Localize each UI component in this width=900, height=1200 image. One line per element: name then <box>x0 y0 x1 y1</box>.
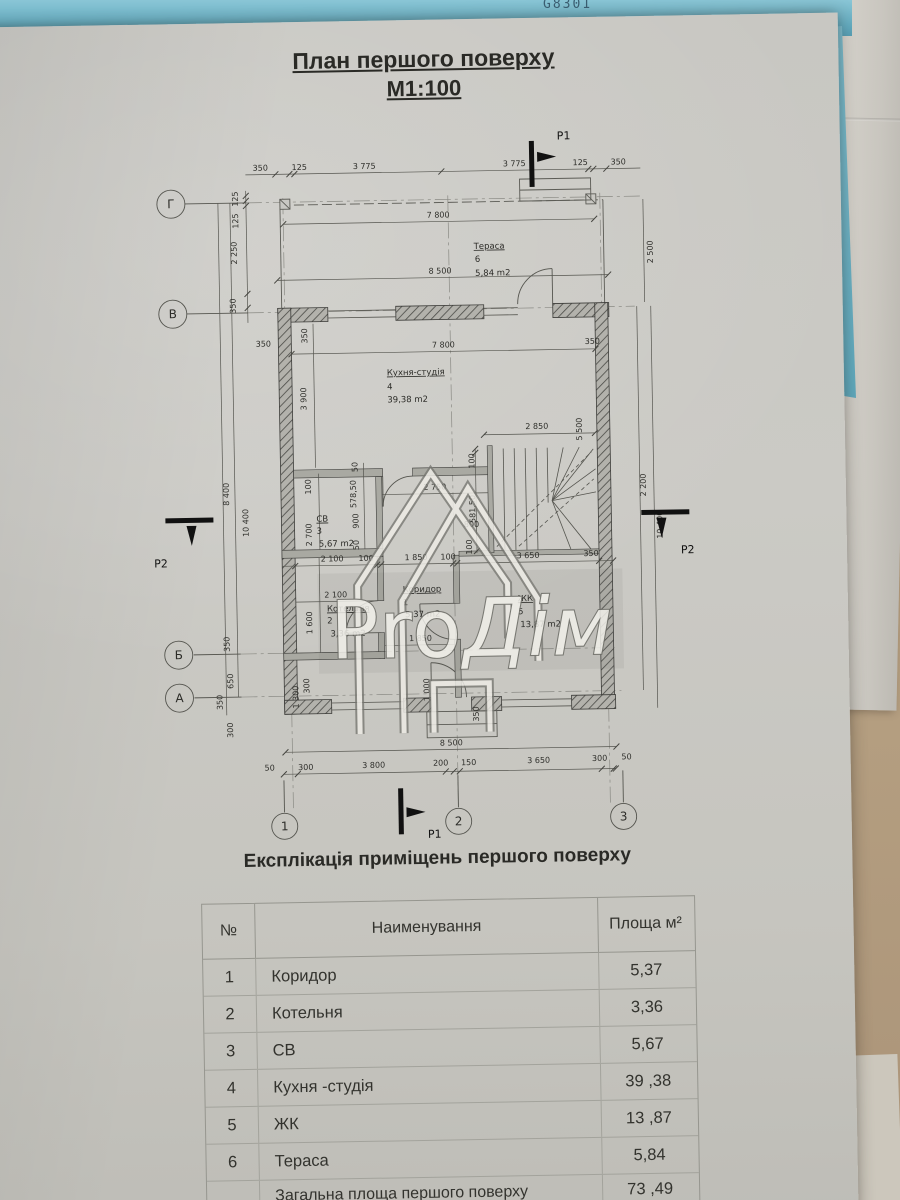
row-name: Тераса <box>258 1138 603 1180</box>
row-area: 13 ,87 <box>602 1099 697 1137</box>
dim-label: 8 500 <box>429 266 452 275</box>
dim-label: 350 <box>256 339 271 348</box>
row-number: 6 <box>206 1144 259 1181</box>
dim-label: 8 400 <box>222 483 231 506</box>
dim-label: 100 <box>467 453 476 468</box>
room-number: 3 <box>317 527 323 537</box>
paper-crease <box>839 117 900 121</box>
explication-table: № Наименування Площа м² 1Коридор5,372Кот… <box>201 895 700 1200</box>
title-text: План першого поверху <box>223 42 623 76</box>
dim-label: 350 <box>222 637 231 652</box>
room-area: 5,84 m2 <box>475 268 510 279</box>
total-number <box>207 1181 260 1200</box>
room-number: 6 <box>475 255 481 265</box>
dim-label: 10 400 <box>241 509 250 537</box>
dim-label: 125 <box>292 163 307 172</box>
axis-letter: А <box>175 691 184 705</box>
dim-label: 2 700 <box>304 523 313 546</box>
dim-label: 350 <box>229 298 238 313</box>
photo-background: G8301 План першого поверху М1:100 <box>0 0 900 1200</box>
axis-grid-lines <box>233 192 654 813</box>
dim-label: 100 <box>304 479 313 494</box>
room-number: 4 <box>387 382 393 392</box>
dim-label: 350 <box>610 157 625 166</box>
dim-label: 2 500 <box>646 240 655 263</box>
dim-label: 50 <box>350 462 359 472</box>
staircase <box>495 447 597 551</box>
row-area: 3,36 <box>600 988 695 1026</box>
dim-label: 300 <box>592 754 607 763</box>
dim-label: 2 200 <box>639 473 648 496</box>
plan-document: План першого поверху М1:100 <box>0 13 859 1200</box>
dim-label: 3 775 <box>353 162 376 171</box>
dim-label: 350 <box>472 706 481 721</box>
room-area: 39,38 m2 <box>387 395 428 406</box>
row-number: 1 <box>203 959 256 996</box>
dim-label: 125 <box>572 158 587 167</box>
dim-label: 100 <box>440 552 455 561</box>
dim-label: 350 <box>300 328 309 343</box>
floor-plan-drawing: 350 125 3 775 3 775 125 350 7 800 8 500 … <box>131 113 714 863</box>
row-number: 3 <box>204 1033 257 1070</box>
section-label: P2 <box>154 557 168 570</box>
dim-label: 200 <box>433 758 448 767</box>
axis-letter: Б <box>175 648 183 662</box>
row-number: 4 <box>205 1070 258 1107</box>
row-name: Кухня -студія <box>257 1064 602 1106</box>
total-area: 73 ,49 <box>603 1173 698 1200</box>
axis-number: 3 <box>620 809 628 823</box>
watermark-text: ProДім <box>330 580 616 678</box>
row-name: Коридор <box>255 953 600 995</box>
section-label: P2 <box>681 543 695 556</box>
dim-label: 300 <box>226 723 235 738</box>
room-name: Тераса <box>473 241 505 252</box>
table-header-row: № Наименування Площа м² <box>202 896 695 960</box>
row-area: 39 ,38 <box>601 1062 696 1100</box>
dim-label: 350 <box>253 164 268 173</box>
page-title: План першого поверху М1:100 <box>223 42 624 105</box>
row-name: Котельня <box>256 990 601 1032</box>
row-name: СВ <box>256 1027 601 1069</box>
dim-label: 8 500 <box>440 738 463 747</box>
row-area: 5,37 <box>599 951 694 989</box>
dim-label: 1 300 <box>291 686 300 709</box>
dim-label: 900 <box>351 513 360 528</box>
row-area: 5,84 <box>602 1136 697 1174</box>
axis-letter: В <box>169 307 177 321</box>
axis-markers <box>157 182 637 841</box>
axis-number: 2 <box>455 814 463 828</box>
dim-label: 5 500 <box>575 418 584 441</box>
axis-letters: Г В Б А 1 2 3 <box>167 189 628 835</box>
dim-label: 3 650 <box>527 756 550 765</box>
dim-label: 50 <box>621 752 631 761</box>
section-label: P1 <box>557 129 571 142</box>
row-number: 2 <box>204 996 257 1033</box>
dim-label: 2 850 <box>525 422 548 431</box>
axis-letter: Г <box>167 197 175 211</box>
dim-label: 2 250 <box>230 242 239 265</box>
room-name: Кухня-студія <box>387 367 445 378</box>
row-name: ЖК <box>258 1101 603 1143</box>
dim-label: 7 800 <box>432 340 455 349</box>
dim-label: 3 650 <box>517 551 540 560</box>
dim-label: 7 800 <box>427 210 450 219</box>
paper-sheet: План першого поверху М1:100 <box>0 13 859 1200</box>
header-name: Наименування <box>254 898 599 958</box>
dim-label: 650 <box>226 674 235 689</box>
dim-label: 50 <box>265 763 275 772</box>
header-area: Площа м² <box>598 896 693 952</box>
dim-label: 3 900 <box>299 387 308 410</box>
row-area: 5,67 <box>600 1025 695 1063</box>
table-body: 1Коридор5,372Котельня3,363СВ5,674Кухня -… <box>203 951 699 1182</box>
dim-label: 300 <box>298 763 313 772</box>
dim-label: 3 775 <box>503 159 526 168</box>
dim-label: 125 <box>231 191 240 206</box>
dim-label: 578,50 <box>349 480 358 508</box>
dim-label: 1 600 <box>305 611 314 634</box>
dim-label: 350 <box>585 337 600 346</box>
header-number: № <box>202 904 255 959</box>
axis-number: 1 <box>281 819 289 833</box>
room-area: 5,67 m2 <box>319 539 354 550</box>
section-label: P1 <box>428 828 442 841</box>
room-name: СВ <box>316 515 328 525</box>
strip-code-label: G8301 <box>543 0 592 12</box>
title-scale: М1:100 <box>224 72 624 105</box>
dim-label: 300 <box>302 678 311 693</box>
dim-label: 125 <box>231 213 240 228</box>
dim-label: 150 <box>461 758 476 767</box>
dim-label: 350 <box>583 549 598 558</box>
dim-label: 100 <box>465 539 474 554</box>
dim-label: 3 800 <box>362 761 385 770</box>
row-number: 5 <box>206 1107 259 1144</box>
dim-label: 2 100 <box>321 554 344 563</box>
